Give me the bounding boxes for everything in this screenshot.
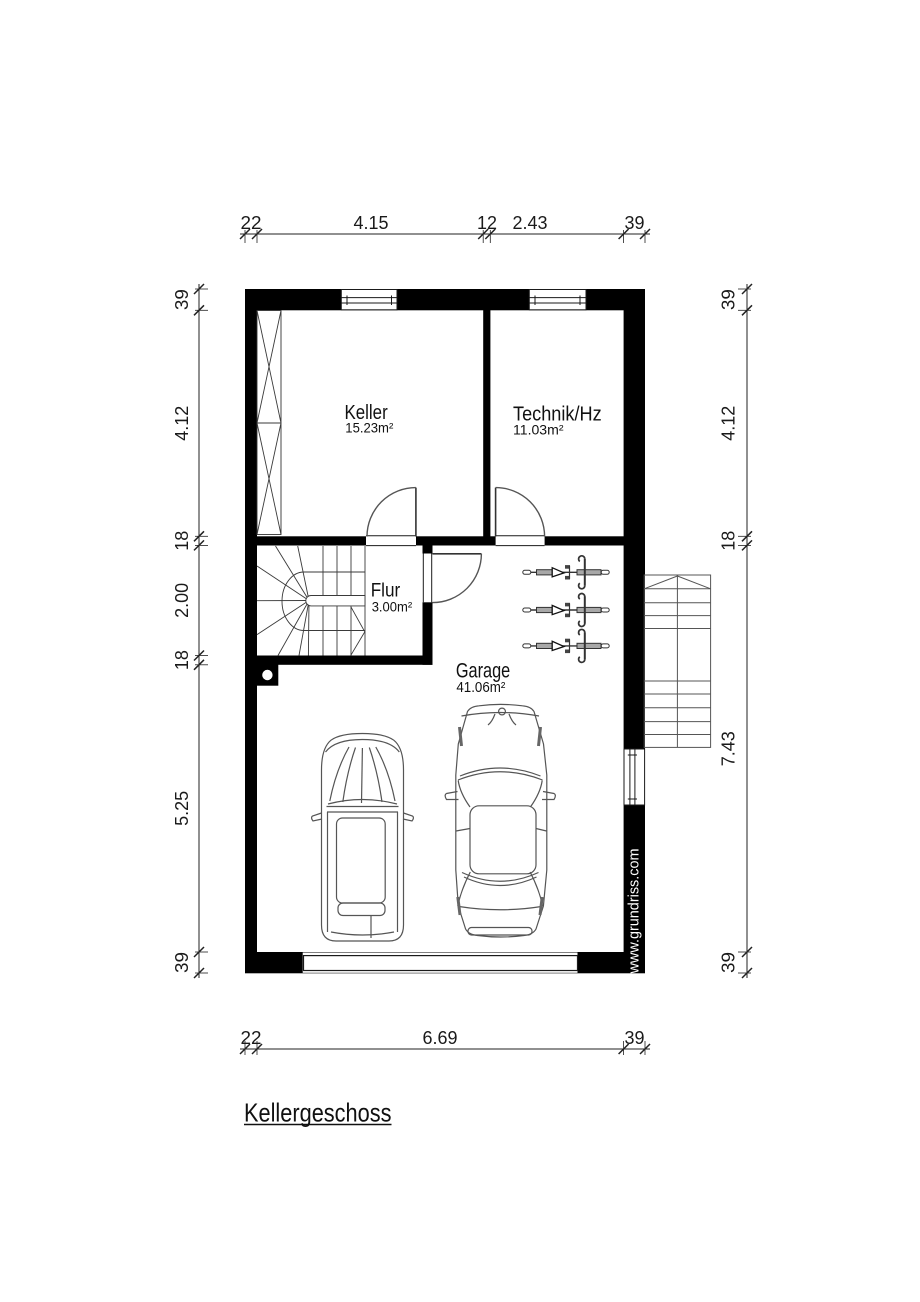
svg-text:Kellergeschoss: Kellergeschoss xyxy=(244,1098,392,1128)
svg-text:39: 39 xyxy=(171,289,192,310)
svg-text:41.06m²: 41.06m² xyxy=(456,680,505,696)
svg-text:39: 39 xyxy=(718,289,739,310)
svg-text:18: 18 xyxy=(718,531,739,551)
svg-text:15.23m²: 15.23m² xyxy=(345,420,393,436)
svg-text:22: 22 xyxy=(241,1027,262,1048)
svg-text:39: 39 xyxy=(171,952,192,973)
svg-text:6.69: 6.69 xyxy=(423,1027,458,1048)
svg-text:11.03m²: 11.03m² xyxy=(513,422,564,438)
svg-text:18: 18 xyxy=(171,531,192,551)
svg-text:39: 39 xyxy=(718,952,739,973)
svg-text:12: 12 xyxy=(477,212,497,233)
svg-text:39: 39 xyxy=(625,212,645,233)
svg-text:4.15: 4.15 xyxy=(354,212,389,233)
svg-text:39: 39 xyxy=(625,1027,645,1048)
svg-text:4.12: 4.12 xyxy=(718,406,739,441)
svg-text:2.00: 2.00 xyxy=(171,583,192,618)
svg-text:4.12: 4.12 xyxy=(171,406,192,441)
svg-text:www.grundriss.com: www.grundriss.com xyxy=(627,849,643,975)
svg-text:2.43: 2.43 xyxy=(513,212,548,233)
svg-text:22: 22 xyxy=(241,212,262,233)
svg-text:18: 18 xyxy=(171,650,192,670)
svg-text:3.00m²: 3.00m² xyxy=(372,599,413,615)
svg-text:7.43: 7.43 xyxy=(718,731,739,766)
svg-text:5.25: 5.25 xyxy=(171,791,192,826)
